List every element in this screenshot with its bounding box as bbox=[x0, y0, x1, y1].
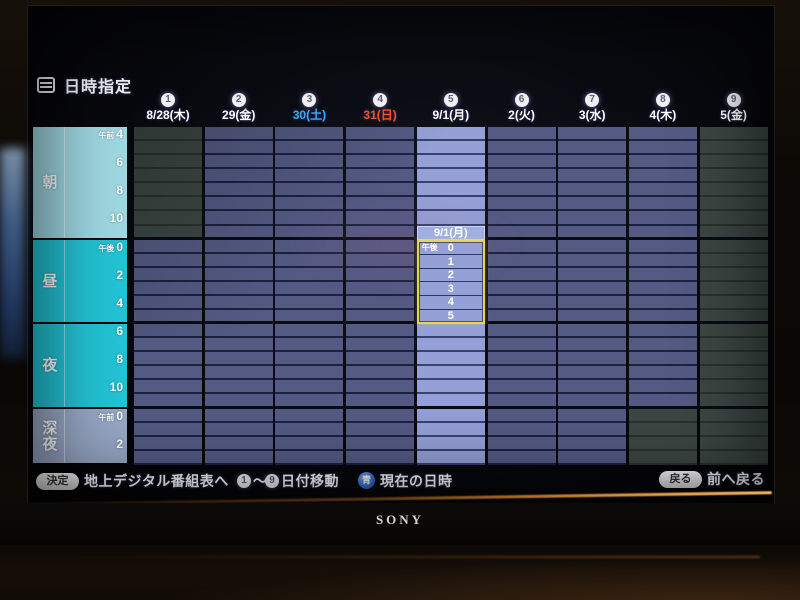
grid-cell[interactable] bbox=[629, 394, 697, 408]
grid-cell[interactable] bbox=[700, 352, 768, 366]
grid-cell[interactable] bbox=[134, 423, 202, 437]
grid-cell[interactable] bbox=[134, 197, 202, 211]
hour-number: 0 bbox=[116, 240, 123, 254]
time-section-label: 夜 bbox=[33, 324, 64, 406]
selection-hour-row: 3 bbox=[419, 282, 483, 296]
day-column-8 bbox=[629, 127, 697, 465]
day-number-badge: 2 bbox=[232, 93, 246, 107]
grid-cell[interactable] bbox=[629, 169, 697, 183]
grid-cell[interactable] bbox=[700, 324, 768, 338]
day-date-label: 30(土) bbox=[275, 109, 343, 122]
grid-cell[interactable] bbox=[346, 183, 414, 197]
grid-cell[interactable] bbox=[346, 310, 414, 324]
grid-cell[interactable] bbox=[417, 169, 485, 183]
back-action-label: 前へ戻る bbox=[707, 471, 765, 488]
grid-cell[interactable] bbox=[275, 268, 343, 282]
grid-cell[interactable] bbox=[488, 451, 556, 465]
grid-cell[interactable] bbox=[629, 423, 697, 437]
selection-hour-number: 0 bbox=[448, 242, 454, 254]
grid-cell[interactable] bbox=[275, 352, 343, 366]
grid-cell[interactable] bbox=[700, 310, 768, 324]
selection-hour-row: 午後0 bbox=[419, 242, 483, 256]
grid-cell[interactable] bbox=[205, 394, 273, 408]
grid-cell[interactable] bbox=[346, 352, 414, 366]
grid-cell[interactable] bbox=[346, 423, 414, 437]
grid-cell[interactable] bbox=[205, 141, 273, 155]
hour-number: 10 bbox=[110, 211, 123, 225]
sony-logo: SONY bbox=[0, 512, 800, 528]
grid-cell[interactable] bbox=[134, 310, 202, 324]
grid-cell[interactable] bbox=[558, 226, 626, 240]
grid-cell[interactable] bbox=[205, 282, 273, 296]
ampm-prefix: 午前 bbox=[98, 413, 114, 422]
grid-cell[interactable] bbox=[275, 338, 343, 352]
grid-cell[interactable] bbox=[629, 197, 697, 211]
time-section-name: 夜 bbox=[41, 357, 57, 373]
grid-cell[interactable] bbox=[205, 240, 273, 254]
grid-cell[interactable] bbox=[275, 380, 343, 394]
grid-cell[interactable] bbox=[700, 183, 768, 197]
side-glow bbox=[0, 148, 25, 358]
grid-cell[interactable] bbox=[488, 338, 556, 352]
grid-cell[interactable] bbox=[629, 226, 697, 240]
hour-labels: 午前02 bbox=[64, 409, 127, 463]
grid-cell[interactable] bbox=[558, 366, 626, 380]
grid-cell[interactable] bbox=[417, 451, 485, 465]
grid-cell[interactable] bbox=[134, 155, 202, 169]
grid-cell[interactable] bbox=[346, 141, 414, 155]
grid-cell[interactable] bbox=[346, 240, 414, 254]
grid-cell[interactable] bbox=[205, 254, 273, 268]
day-header-5[interactable]: 59/1(月) bbox=[417, 93, 485, 122]
grid-cell[interactable] bbox=[205, 366, 273, 380]
hour-number: 10 bbox=[110, 380, 123, 394]
decide-action-label: 地上デジタル番組表へ bbox=[84, 473, 229, 490]
hour-number: 2 bbox=[116, 268, 123, 282]
grid-cell[interactable] bbox=[488, 169, 556, 183]
grid-cell[interactable] bbox=[205, 197, 273, 211]
grid-cell[interactable] bbox=[700, 394, 768, 408]
selection-hour-number: 5 bbox=[448, 310, 454, 322]
grid-cell[interactable] bbox=[700, 451, 768, 465]
grid-cell[interactable] bbox=[558, 409, 626, 423]
selection-hour-number: 2 bbox=[448, 269, 454, 281]
grid-cell[interactable] bbox=[700, 169, 768, 183]
grid-cell[interactable] bbox=[205, 423, 273, 437]
grid-cell[interactable] bbox=[629, 141, 697, 155]
day-column-6 bbox=[488, 127, 556, 465]
time-section-name: 深夜 bbox=[41, 420, 57, 452]
grid-cell[interactable] bbox=[488, 394, 556, 408]
grid-cell[interactable] bbox=[205, 268, 273, 282]
grid-cell[interactable] bbox=[205, 226, 273, 240]
selection-box[interactable]: 午後012345 bbox=[417, 240, 485, 324]
grid-cell[interactable] bbox=[488, 437, 556, 451]
day-column-1 bbox=[134, 127, 202, 465]
grid-cell[interactable] bbox=[700, 437, 768, 451]
grid-cell[interactable] bbox=[629, 324, 697, 338]
selection-hour-row: 4 bbox=[419, 296, 483, 310]
grid-cell[interactable] bbox=[275, 451, 343, 465]
time-section-morning: 朝午前46810 bbox=[33, 127, 127, 238]
grid-cell[interactable] bbox=[275, 282, 343, 296]
grid-cell[interactable] bbox=[629, 254, 697, 268]
grid-cell[interactable] bbox=[417, 409, 485, 423]
hour-label: 10 bbox=[110, 211, 123, 225]
grid-cell[interactable] bbox=[134, 141, 202, 155]
grid-cell[interactable] bbox=[275, 423, 343, 437]
grid-cell[interactable] bbox=[346, 254, 414, 268]
grid-cell[interactable] bbox=[558, 380, 626, 394]
grid-cell[interactable] bbox=[205, 352, 273, 366]
grid-cell[interactable] bbox=[275, 169, 343, 183]
grid-cell[interactable] bbox=[700, 155, 768, 169]
day-date-label: 9/1(月) bbox=[417, 109, 485, 122]
grid-cell[interactable] bbox=[558, 394, 626, 408]
day-header-1[interactable]: 18/28(木) bbox=[134, 93, 202, 122]
grid-cell[interactable] bbox=[346, 409, 414, 423]
grid-cell[interactable] bbox=[629, 338, 697, 352]
grid-cell[interactable] bbox=[629, 310, 697, 324]
page-title: 日時指定 bbox=[64, 73, 132, 97]
grid-cell[interactable] bbox=[417, 423, 485, 437]
grid-cell[interactable] bbox=[346, 169, 414, 183]
grid-cell[interactable] bbox=[346, 155, 414, 169]
grid-cell[interactable] bbox=[558, 197, 626, 211]
grid-cell[interactable] bbox=[700, 338, 768, 352]
grid-cell[interactable] bbox=[488, 155, 556, 169]
day-date-label: 5(金) bbox=[700, 109, 768, 122]
grid-cell[interactable] bbox=[134, 324, 202, 338]
grid-cell[interactable] bbox=[558, 352, 626, 366]
grid-cell[interactable] bbox=[488, 380, 556, 394]
grid-cell[interactable] bbox=[488, 423, 556, 437]
current-datetime-label: 現在の日時 bbox=[380, 473, 453, 490]
grid-cell[interactable] bbox=[629, 380, 697, 394]
day-date-label: 29(金) bbox=[205, 109, 273, 122]
grid-cell[interactable] bbox=[558, 451, 626, 465]
grid-cell[interactable] bbox=[134, 169, 202, 183]
grid-cell[interactable] bbox=[134, 394, 202, 408]
ampm-prefix: 午後 bbox=[422, 242, 438, 253]
hour-number: 8 bbox=[116, 352, 123, 366]
selection-day-label: 9/1(月) bbox=[417, 226, 485, 240]
grid-cell[interactable] bbox=[488, 240, 556, 254]
grid-cell[interactable] bbox=[275, 409, 343, 423]
grid-cell[interactable] bbox=[629, 211, 697, 225]
grid-cell[interactable] bbox=[700, 268, 768, 282]
day-date-label: 3(水) bbox=[558, 109, 626, 122]
grid-cell[interactable] bbox=[346, 211, 414, 225]
grid-cell[interactable] bbox=[346, 268, 414, 282]
grid-cell[interactable] bbox=[700, 282, 768, 296]
day-header-9[interactable]: 95(金) bbox=[700, 93, 768, 122]
grid-cell[interactable] bbox=[134, 240, 202, 254]
grid-cell[interactable] bbox=[629, 366, 697, 380]
grid-cell[interactable] bbox=[558, 183, 626, 197]
grid-cell[interactable] bbox=[134, 380, 202, 394]
grid-cell[interactable] bbox=[205, 169, 273, 183]
grid-cell[interactable] bbox=[346, 451, 414, 465]
grid-cell[interactable] bbox=[629, 451, 697, 465]
day-header-8[interactable]: 84(木) bbox=[629, 93, 697, 122]
grid-cell[interactable] bbox=[558, 127, 626, 141]
grid-cell[interactable] bbox=[629, 183, 697, 197]
grid-cell[interactable] bbox=[417, 352, 485, 366]
grid-cell[interactable] bbox=[134, 366, 202, 380]
day-date-label: 31(日) bbox=[346, 109, 414, 122]
grid-cell[interactable] bbox=[488, 324, 556, 338]
grid-cell[interactable] bbox=[134, 437, 202, 451]
grid-cell[interactable] bbox=[558, 338, 626, 352]
grid-cell[interactable] bbox=[275, 197, 343, 211]
time-section-midday: 昼午後024 bbox=[33, 240, 127, 322]
time-section-name: 昼 bbox=[41, 273, 57, 289]
grid-cell[interactable] bbox=[558, 296, 626, 310]
grid-cell[interactable] bbox=[700, 296, 768, 310]
grid-cell[interactable] bbox=[488, 197, 556, 211]
grid-cell[interactable] bbox=[488, 254, 556, 268]
grid-cell[interactable] bbox=[275, 366, 343, 380]
grid-cell[interactable] bbox=[275, 324, 343, 338]
grid-cell[interactable] bbox=[700, 211, 768, 225]
grid-cell[interactable] bbox=[275, 127, 343, 141]
grid-cell[interactable] bbox=[346, 127, 414, 141]
grid-cell[interactable] bbox=[700, 141, 768, 155]
grid-cell[interactable] bbox=[700, 380, 768, 394]
grid-cell[interactable] bbox=[417, 338, 485, 352]
grid-cell[interactable] bbox=[488, 141, 556, 155]
hour-number: 8 bbox=[116, 183, 123, 197]
day-header-6[interactable]: 62(火) bbox=[488, 93, 556, 122]
selection-hour-row: 1 bbox=[419, 255, 483, 269]
hour-label: 8 bbox=[116, 352, 123, 366]
grid-cell[interactable] bbox=[488, 226, 556, 240]
grid-cell[interactable] bbox=[134, 451, 202, 465]
grid-cell[interactable] bbox=[417, 155, 485, 169]
grid-cell[interactable] bbox=[346, 380, 414, 394]
grid-cell[interactable] bbox=[558, 169, 626, 183]
hour-label: 8 bbox=[116, 183, 123, 197]
grid-cell[interactable] bbox=[275, 155, 343, 169]
grid-cell[interactable] bbox=[346, 296, 414, 310]
grid-cell[interactable] bbox=[700, 423, 768, 437]
grid-cell[interactable] bbox=[558, 254, 626, 268]
day-date-label: 2(火) bbox=[488, 109, 556, 122]
selection-hour-number: 4 bbox=[448, 296, 454, 308]
grid-cell[interactable] bbox=[205, 183, 273, 197]
grid-cell[interactable] bbox=[417, 437, 485, 451]
day-number-badge: 7 bbox=[585, 93, 599, 107]
grid-cell[interactable] bbox=[346, 282, 414, 296]
grid-cell[interactable] bbox=[700, 226, 768, 240]
day-header-2[interactable]: 229(金) bbox=[205, 93, 273, 122]
grid-cell[interactable] bbox=[558, 268, 626, 282]
day-number-badge: 4 bbox=[373, 93, 387, 107]
grid-cell[interactable] bbox=[134, 211, 202, 225]
grid-cell[interactable] bbox=[558, 310, 626, 324]
hour-label: 4 bbox=[116, 296, 123, 310]
time-section-evening: 夜6810 bbox=[33, 324, 127, 406]
grid-cell[interactable] bbox=[134, 409, 202, 423]
grid-cell[interactable] bbox=[488, 282, 556, 296]
hour-label: 午後0 bbox=[98, 240, 123, 254]
grid-cell[interactable] bbox=[417, 197, 485, 211]
grid-cell[interactable] bbox=[558, 155, 626, 169]
grid-cell[interactable] bbox=[558, 240, 626, 254]
grid-cell[interactable] bbox=[275, 394, 343, 408]
grid-cell[interactable] bbox=[134, 127, 202, 141]
grid-cell[interactable] bbox=[417, 380, 485, 394]
day-number-badge: 9 bbox=[727, 93, 741, 107]
grid-cell[interactable] bbox=[275, 437, 343, 451]
grid-cell[interactable] bbox=[629, 409, 697, 423]
grid-cell[interactable] bbox=[205, 155, 273, 169]
grid-cell[interactable] bbox=[346, 394, 414, 408]
grid-cell[interactable] bbox=[134, 338, 202, 352]
hour-label: 6 bbox=[116, 155, 123, 169]
grid-cell[interactable] bbox=[700, 197, 768, 211]
grid-cell[interactable] bbox=[700, 409, 768, 423]
grid-cell[interactable] bbox=[558, 141, 626, 155]
grid-cell[interactable] bbox=[558, 437, 626, 451]
blue-key-button[interactable]: 青 bbox=[358, 472, 375, 489]
grid-cell[interactable] bbox=[488, 310, 556, 324]
grid-cell[interactable] bbox=[346, 338, 414, 352]
hour-label: 午前4 bbox=[98, 127, 123, 141]
hour-number: 0 bbox=[116, 409, 123, 423]
grid-cell[interactable] bbox=[488, 366, 556, 380]
grid-cell[interactable] bbox=[346, 226, 414, 240]
grid-cell[interactable] bbox=[205, 338, 273, 352]
grid-cell[interactable] bbox=[275, 310, 343, 324]
grid-cell[interactable] bbox=[417, 183, 485, 197]
grid-cell[interactable] bbox=[346, 324, 414, 338]
grid-cell[interactable] bbox=[205, 380, 273, 394]
hour-number: 4 bbox=[116, 127, 123, 141]
table-sheen bbox=[60, 556, 760, 558]
grid-cell[interactable] bbox=[275, 226, 343, 240]
grid-cell[interactable] bbox=[275, 183, 343, 197]
grid-cell[interactable] bbox=[417, 324, 485, 338]
grid-cell[interactable] bbox=[700, 366, 768, 380]
grid-cell[interactable] bbox=[417, 366, 485, 380]
grid-cell[interactable] bbox=[488, 296, 556, 310]
grid-cell[interactable] bbox=[488, 211, 556, 225]
ampm-prefix: 午前 bbox=[98, 131, 114, 140]
title-bar: 日時指定 bbox=[37, 75, 132, 95]
day-header-3[interactable]: 330(土) bbox=[275, 93, 343, 122]
grid-cell[interactable] bbox=[700, 240, 768, 254]
grid-cell[interactable] bbox=[417, 211, 485, 225]
grid-cell[interactable] bbox=[134, 268, 202, 282]
grid-cell[interactable] bbox=[275, 211, 343, 225]
grid-cell[interactable] bbox=[346, 197, 414, 211]
grid-cell[interactable] bbox=[558, 211, 626, 225]
time-section-latenight: 深夜午前02 bbox=[33, 409, 127, 463]
hour-number: 2 bbox=[116, 437, 123, 451]
date-range-badge-1: 1 bbox=[237, 474, 251, 488]
day-number-badge: 6 bbox=[515, 93, 529, 107]
selection-hour-number: 1 bbox=[448, 256, 454, 268]
grid-cell[interactable] bbox=[629, 127, 697, 141]
grid-cell[interactable] bbox=[134, 254, 202, 268]
footer-bar: 決定 地上デジタル番組表へ 1 ～ 9 日付移動 青 現在の日時 戻る 前へ戻る bbox=[33, 471, 773, 493]
day-header-7[interactable]: 73(水) bbox=[558, 93, 626, 122]
grid-cell[interactable] bbox=[488, 268, 556, 282]
grid-cell[interactable] bbox=[417, 141, 485, 155]
back-button[interactable]: 戻る bbox=[659, 471, 702, 488]
grid-cell[interactable] bbox=[275, 240, 343, 254]
time-section-label: 朝 bbox=[33, 127, 64, 238]
grid-cell[interactable] bbox=[205, 437, 273, 451]
table-surface bbox=[0, 545, 800, 600]
grid-cell[interactable] bbox=[558, 324, 626, 338]
day-column-2 bbox=[205, 127, 273, 465]
hour-label: 10 bbox=[110, 380, 123, 394]
decide-button[interactable]: 決定 bbox=[36, 473, 79, 490]
selection-hour-row: 2 bbox=[419, 269, 483, 283]
grid-cell[interactable] bbox=[205, 310, 273, 324]
ampm-prefix: 午後 bbox=[98, 244, 114, 253]
grid-cell[interactable] bbox=[134, 183, 202, 197]
grid-cell[interactable] bbox=[346, 437, 414, 451]
selection-hour-number: 3 bbox=[448, 283, 454, 295]
grid-cell[interactable] bbox=[417, 127, 485, 141]
grid-cell[interactable] bbox=[488, 127, 556, 141]
grid-cell[interactable] bbox=[629, 437, 697, 451]
day-date-label: 4(木) bbox=[629, 109, 697, 122]
grid-cell[interactable] bbox=[205, 211, 273, 225]
grid-cell[interactable] bbox=[558, 423, 626, 437]
grid-cell[interactable] bbox=[629, 268, 697, 282]
grid-cell[interactable] bbox=[134, 226, 202, 240]
day-number-badge: 3 bbox=[302, 93, 316, 107]
day-number-badge: 5 bbox=[444, 93, 458, 107]
grid-cell[interactable] bbox=[488, 409, 556, 423]
day-column-9 bbox=[700, 127, 768, 465]
grid-cell[interactable] bbox=[134, 296, 202, 310]
hour-number: 6 bbox=[116, 155, 123, 169]
grid-cell[interactable] bbox=[205, 324, 273, 338]
grid-cell[interactable] bbox=[700, 127, 768, 141]
grid-cell[interactable] bbox=[205, 409, 273, 423]
grid-cell[interactable] bbox=[346, 366, 414, 380]
grid-cell[interactable] bbox=[629, 240, 697, 254]
grid-cell[interactable] bbox=[700, 254, 768, 268]
grid-cell[interactable] bbox=[275, 296, 343, 310]
grid-cell[interactable] bbox=[275, 254, 343, 268]
grid-cell[interactable] bbox=[629, 296, 697, 310]
grid-cell[interactable] bbox=[488, 352, 556, 366]
grid-cell[interactable] bbox=[205, 127, 273, 141]
grid-cell[interactable] bbox=[275, 141, 343, 155]
grid-cell[interactable] bbox=[417, 394, 485, 408]
grid-cell[interactable] bbox=[205, 451, 273, 465]
grid-cell[interactable] bbox=[488, 183, 556, 197]
grid-cell[interactable] bbox=[134, 282, 202, 296]
time-section-name: 朝 bbox=[41, 174, 57, 190]
grid-cell[interactable] bbox=[629, 282, 697, 296]
date-range-badge-9: 9 bbox=[265, 474, 279, 488]
grid-cell[interactable] bbox=[629, 352, 697, 366]
grid-cell[interactable] bbox=[205, 296, 273, 310]
grid-cell[interactable] bbox=[629, 155, 697, 169]
grid-cell[interactable] bbox=[558, 282, 626, 296]
time-section-label: 深夜 bbox=[33, 409, 64, 463]
day-header-4[interactable]: 431(日) bbox=[346, 93, 414, 122]
grid-cell[interactable] bbox=[134, 352, 202, 366]
